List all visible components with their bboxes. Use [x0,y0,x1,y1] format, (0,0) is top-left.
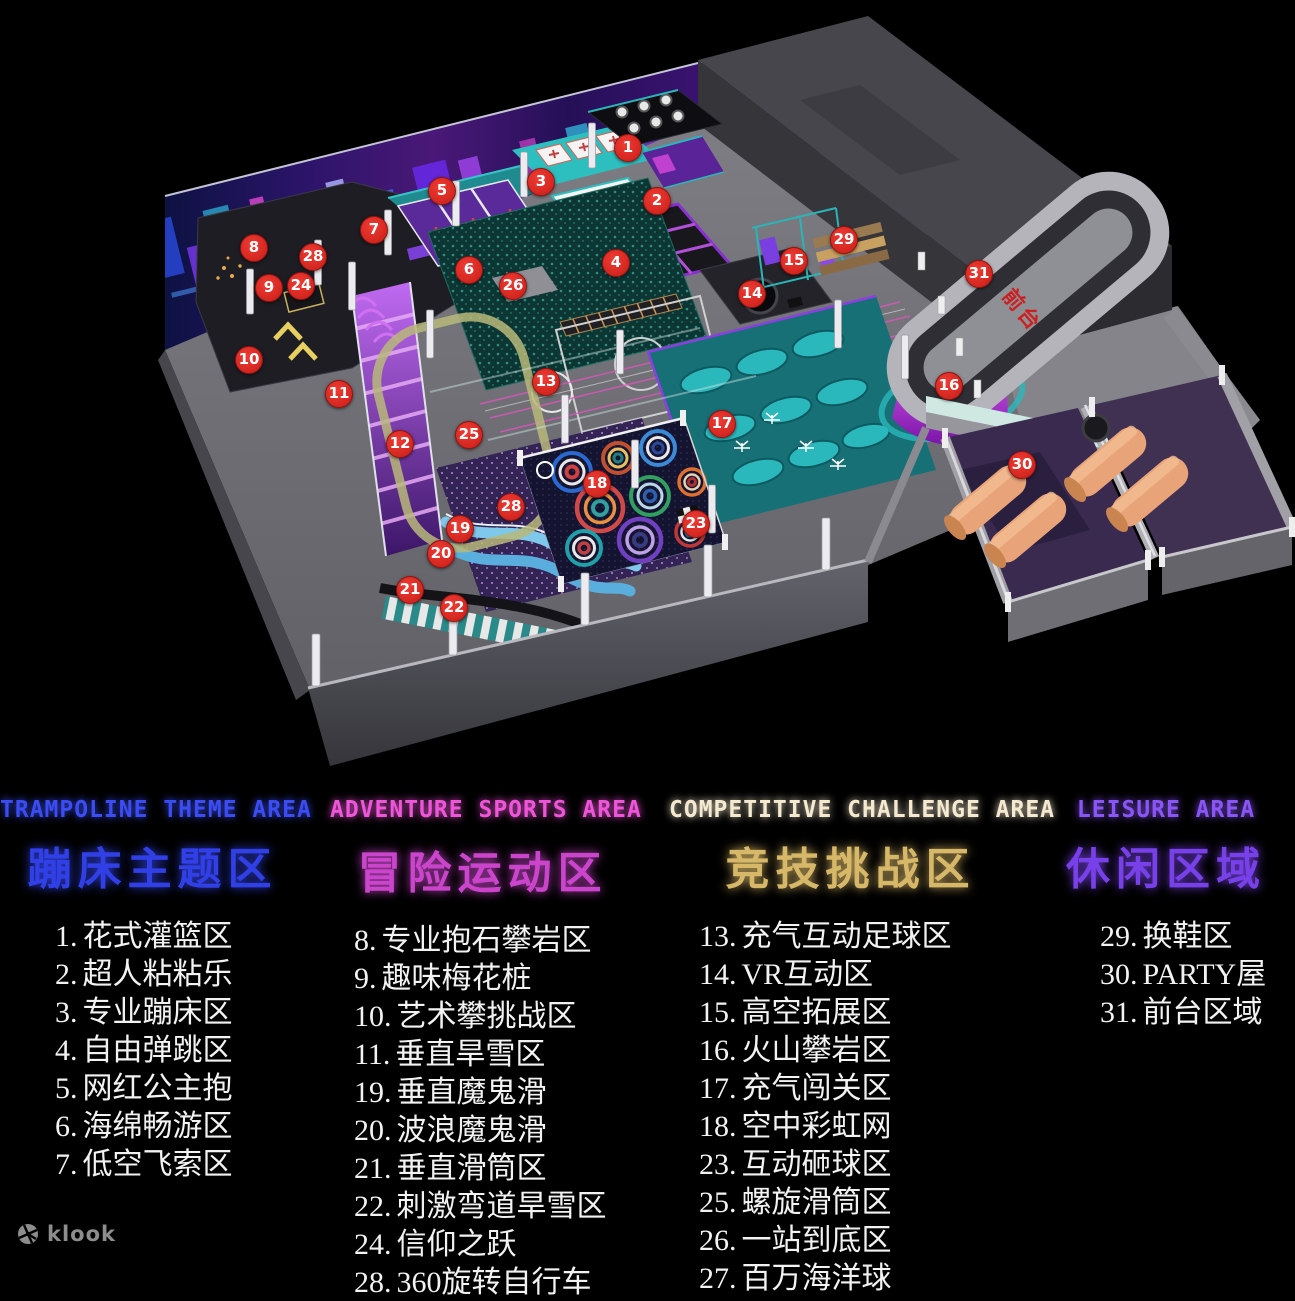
legend-item-14: 14.VR互动区 [699,949,1032,987]
legend-item-8: 8.专业抱石攀岩区 [354,915,635,953]
legend-item-9: 9.趣味梅花桩 [354,953,635,991]
section-title-en: ADVENTURE SPORTS AREA [330,797,635,823]
legend-item-30: 30.PARTY屋 [1100,949,1276,987]
section-title-cn: 休闲区域 [1056,833,1276,897]
legend-item-22: 22.刺激弯道旱雪区 [354,1181,635,1219]
legend-item-18: 18.空中彩虹网 [699,1101,1032,1139]
legend-item-15: 15.高空拓展区 [699,987,1032,1025]
klook-brand-text: klook [47,1222,116,1246]
legend-item-19: 19.垂直魔鬼滑 [354,1067,635,1105]
legend-item-13: 13.充气互动足球区 [699,911,1032,949]
klook-logo-icon [16,1222,40,1246]
section-title-cn: 竞技挑战区 [669,833,1032,897]
legend-item-26: 26.一站到底区 [699,1215,1032,1253]
legend-item-16: 16.火山攀岩区 [699,1025,1032,1063]
legend-item-1: 1.花式灌篮区 [55,911,305,949]
legend-item-20: 20.波浪魔鬼滑 [354,1105,635,1143]
legend-item-31: 31.前台区域 [1100,987,1276,1025]
floorplan-render: 前台 [0,0,1295,790]
legend-section-leisure: LEISURE AREA 休闲区域 29.换鞋区30.PARTY屋31.前台区域 [1056,797,1276,1025]
legend-section-trampoline: TRAMPOLINE THEME AREA 蹦床主题区 1.花式灌篮区2.超人粘… [0,797,305,1177]
section-title-cn: 蹦床主题区 [0,833,305,897]
section-title-en: COMPETITIVE CHALLENGE AREA [669,797,1032,823]
legend-item-4: 4.自由弹跳区 [55,1025,305,1063]
section-title-en: TRAMPOLINE THEME AREA [0,797,305,823]
legend-item-23: 23.互动砸球区 [699,1139,1032,1177]
legend-item-2: 2.超人粘粘乐 [55,949,305,987]
legend-section-adventure: ADVENTURE SPORTS AREA 冒险运动区 8.专业抱石攀岩区9.趣… [330,797,635,1295]
legend-section-competitive: COMPETITIVE CHALLENGE AREA 竞技挑战区 13.充气互动… [669,797,1032,1291]
legend-item-25: 25.螺旋滑筒区 [699,1177,1032,1215]
klook-watermark: klook [16,1222,116,1246]
legend: TRAMPOLINE THEME AREA 蹦床主题区 1.花式灌篮区2.超人粘… [0,790,1295,1266]
legend-item-27: 27.百万海洋球 [699,1253,1032,1291]
legend-item-28: 28.360旋转自行车 [354,1257,635,1295]
legend-item-21: 21.垂直滑筒区 [354,1143,635,1181]
section-title-en: LEISURE AREA [1056,797,1276,823]
legend-item-6: 6.海绵畅游区 [55,1101,305,1139]
legend-item-11: 11.垂直旱雪区 [354,1029,635,1067]
legend-item-17: 17.充气闯关区 [699,1063,1032,1101]
legend-item-3: 3.专业蹦床区 [55,987,305,1025]
section-title-cn: 冒险运动区 [330,837,635,901]
legend-item-5: 5.网红公主抱 [55,1063,305,1101]
park-floorplan: 前台 [0,0,1295,790]
legend-item-7: 7.低空飞索区 [55,1139,305,1177]
legend-item-10: 10.艺术攀挑战区 [354,991,635,1029]
legend-item-29: 29.换鞋区 [1100,911,1276,949]
